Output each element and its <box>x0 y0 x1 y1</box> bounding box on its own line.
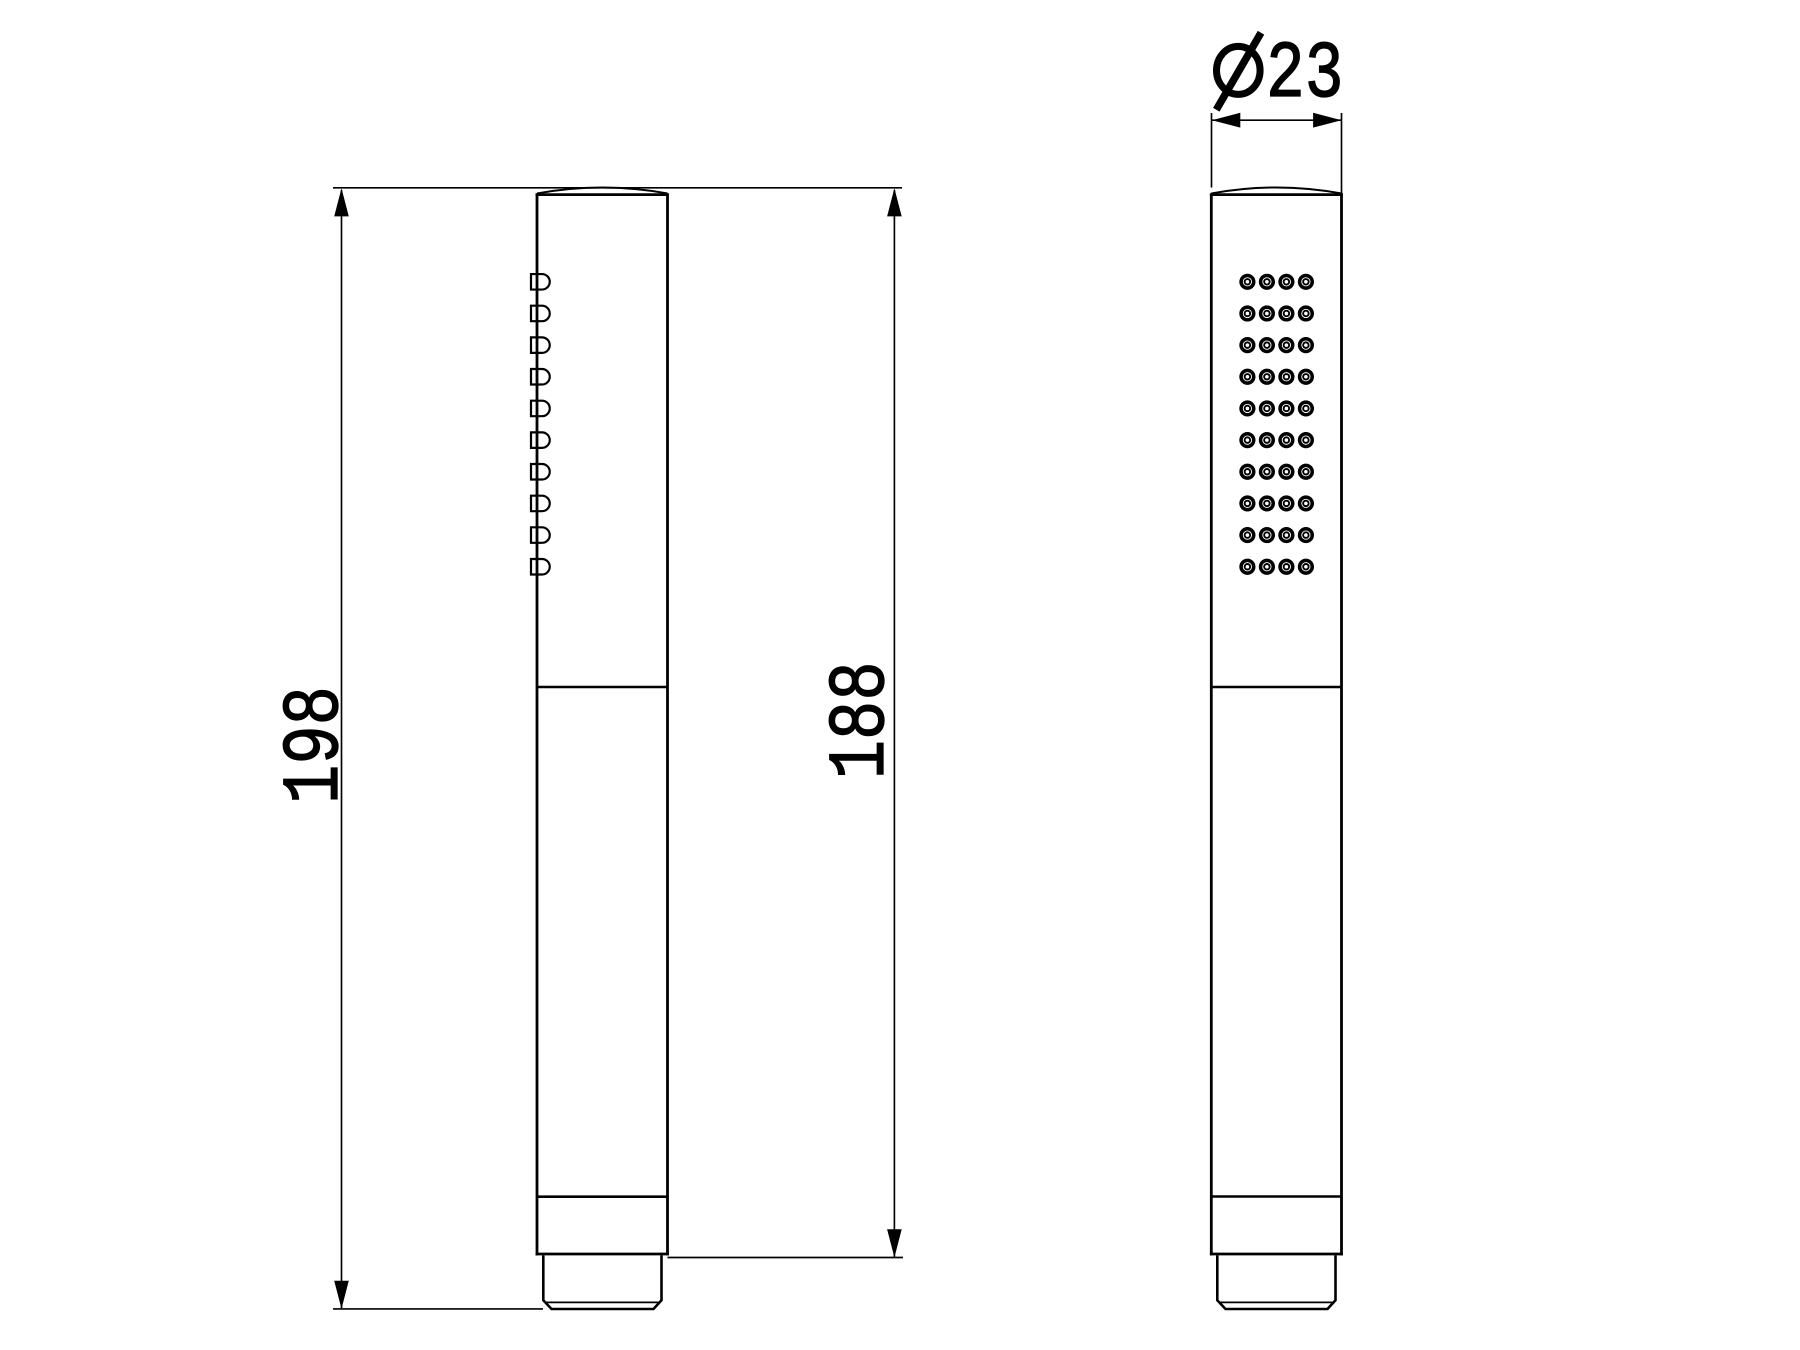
svg-text:198: 198 <box>271 686 362 804</box>
svg-text:23: 23 <box>1266 30 1344 121</box>
svg-text:188: 188 <box>817 661 908 779</box>
